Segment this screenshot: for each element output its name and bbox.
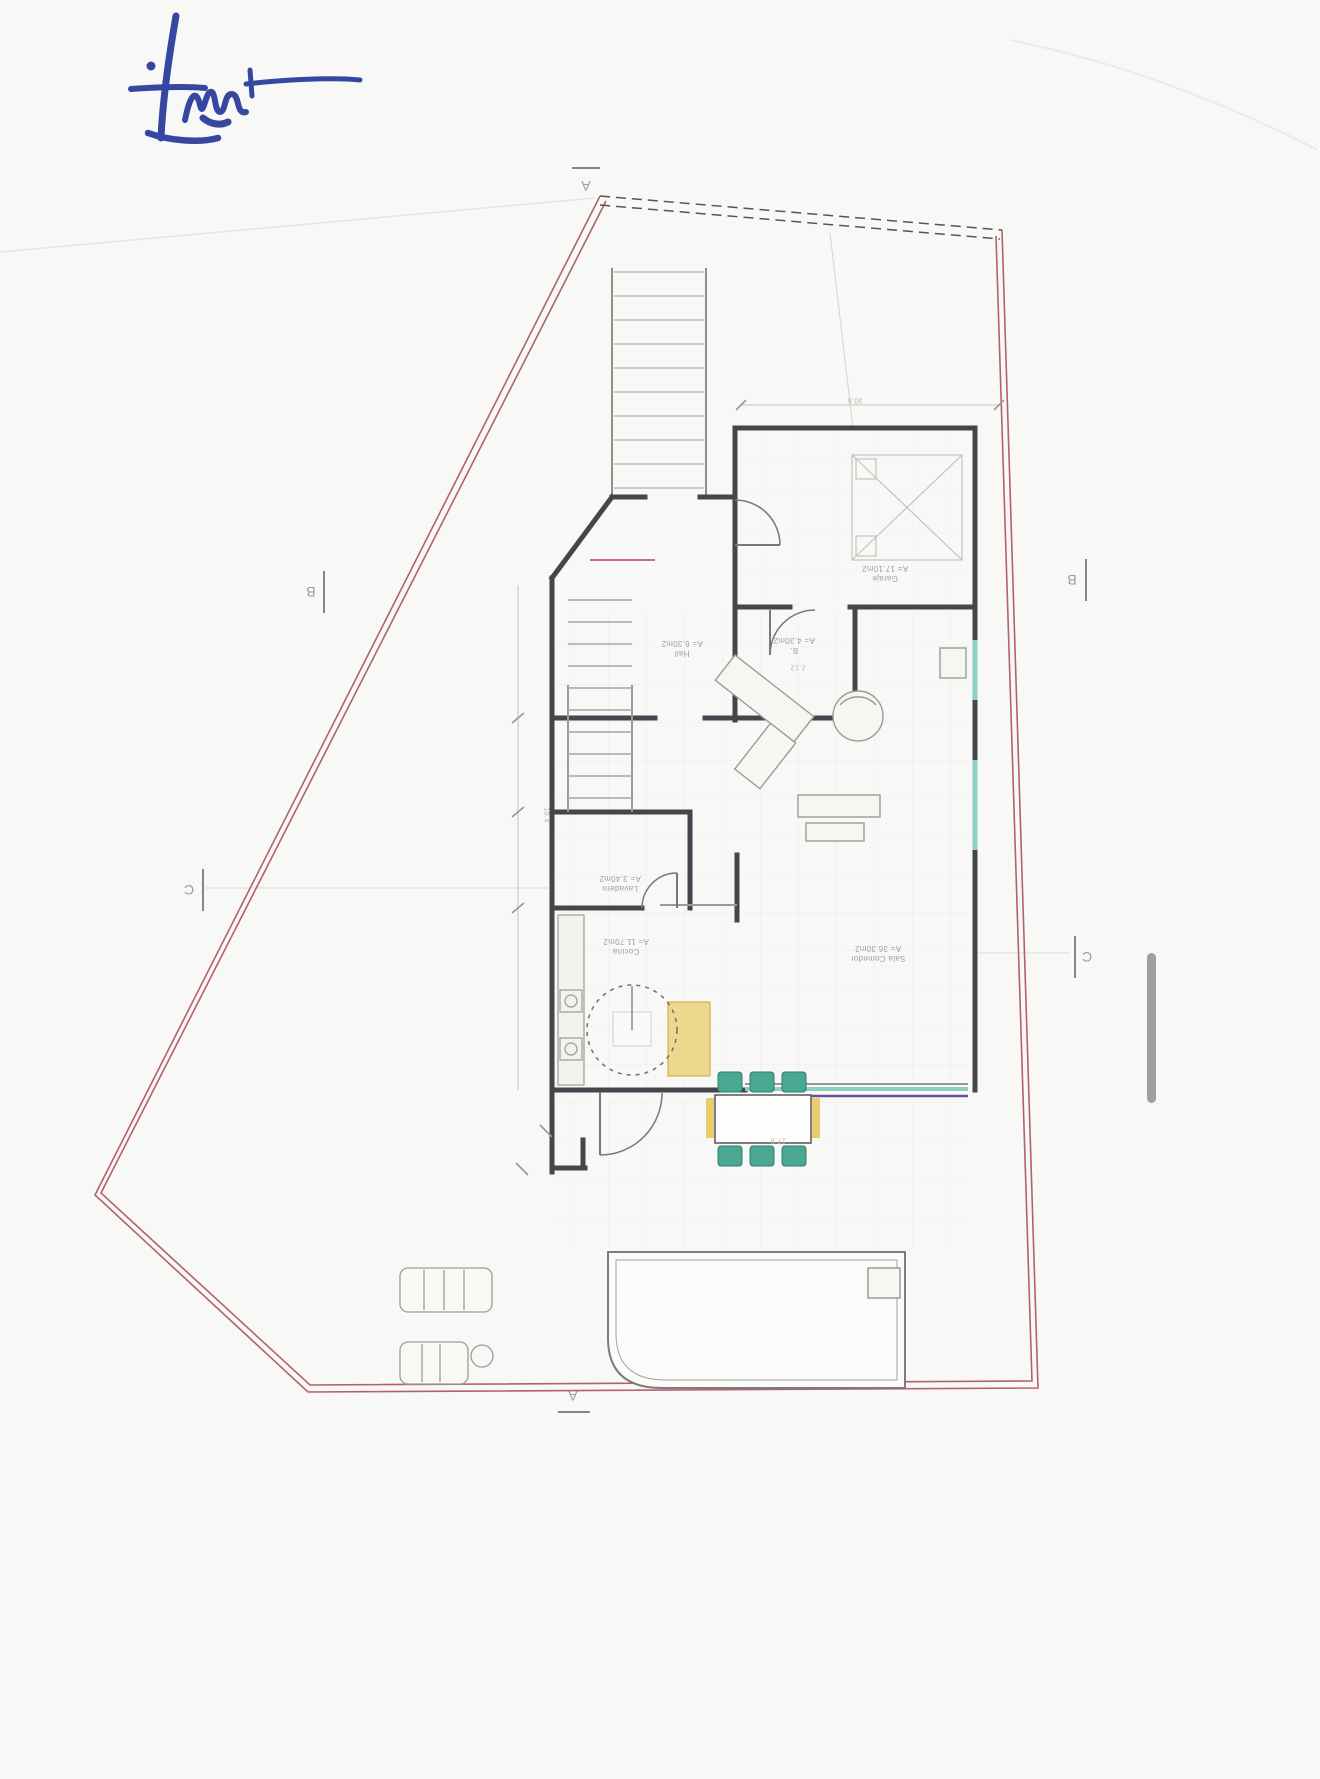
room-label-lavadero: Lavadero A= 3.40m2 bbox=[599, 872, 641, 894]
dim-garage-top: 30.6 bbox=[847, 397, 862, 404]
room-area: A= 6.30m2 bbox=[661, 637, 703, 647]
dim-terrace: 27.8 bbox=[770, 1137, 785, 1144]
room-area: A= 4.30m2 bbox=[773, 634, 815, 644]
swimming-pool bbox=[608, 1252, 905, 1388]
room-area: A= 36.30m2 bbox=[851, 942, 906, 952]
room-name: Garaje bbox=[862, 573, 908, 583]
room-name: Lavadero bbox=[599, 883, 641, 893]
room-area: A= 3.40m2 bbox=[599, 872, 641, 882]
kitchen-island-yellow bbox=[668, 1002, 710, 1076]
section-marker-c-left: C bbox=[184, 882, 194, 898]
boundary-top-dashed bbox=[600, 196, 1002, 239]
dim-bath: 2.12 bbox=[790, 664, 805, 671]
sun-loungers bbox=[400, 1268, 493, 1384]
room-label-garaje: Garaje A= 17.10m2 bbox=[862, 562, 908, 584]
scanned-page: Garaje A= 17.10m2 Hall A= 6.30m2 B. A= 4… bbox=[0, 0, 1320, 1779]
room-name: Hall bbox=[661, 648, 703, 658]
room-name: B. bbox=[773, 645, 815, 655]
room-label-cocina: Cocina A= 11.70m2 bbox=[603, 935, 649, 957]
dining-set bbox=[706, 1072, 820, 1166]
section-marker-b-left: B bbox=[306, 584, 315, 600]
dim-stairs: 10.4 bbox=[543, 807, 550, 822]
section-marker-b-right: B bbox=[1067, 572, 1076, 588]
room-name: Sala Comedor bbox=[851, 953, 906, 963]
section-marker-c-right: C bbox=[1082, 949, 1092, 965]
room-area: A= 17.10m2 bbox=[862, 562, 908, 572]
section-marker-a-top: A bbox=[581, 178, 590, 194]
kitchen-counter bbox=[558, 915, 584, 1085]
scrollbar-thumb[interactable] bbox=[1147, 953, 1156, 1103]
room-label-hall: Hall A= 6.30m2 bbox=[661, 637, 703, 659]
room-area: A= 11.70m2 bbox=[603, 935, 649, 945]
room-label-sala-comedor: Sala Comedor A= 36.30m2 bbox=[851, 942, 906, 964]
room-label-bath: B. A= 4.30m2 bbox=[773, 634, 815, 656]
handwritten-signature bbox=[131, 16, 360, 141]
entry-steps bbox=[612, 268, 706, 497]
floorplan-linework bbox=[0, 0, 1320, 1779]
section-marker-a-bottom: A bbox=[568, 1388, 577, 1404]
room-name: Cocina bbox=[603, 946, 649, 956]
